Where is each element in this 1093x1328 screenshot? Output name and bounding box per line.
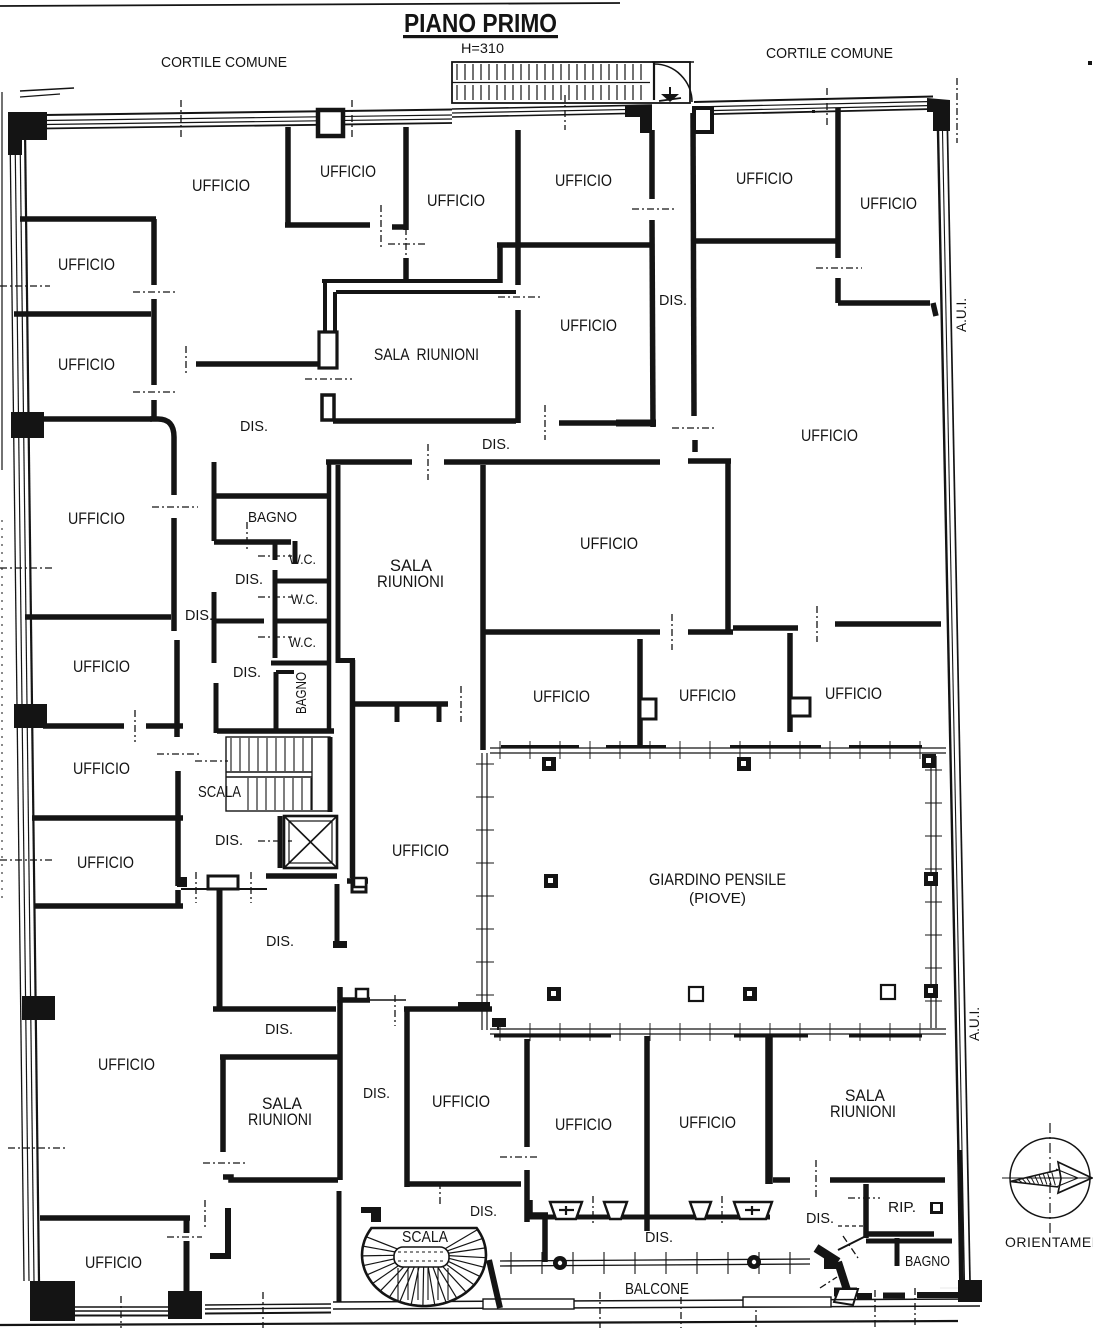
svg-text:DIS.: DIS. xyxy=(806,1210,834,1227)
svg-text:RIUNIONI: RIUNIONI xyxy=(377,573,444,591)
svg-text:UFFICIO: UFFICIO xyxy=(98,1056,155,1074)
svg-text:A.U.I.: A.U.I. xyxy=(966,1007,982,1041)
svg-text:BAGNO: BAGNO xyxy=(294,672,310,714)
svg-text:DIS.: DIS. xyxy=(645,1229,673,1246)
svg-text:UFFICIO: UFFICIO xyxy=(58,256,115,274)
svg-text:W.C.: W.C. xyxy=(291,591,318,607)
svg-text:UFFICIO: UFFICIO xyxy=(825,685,882,703)
svg-text:ORIENTAMENTO: ORIENTAMENTO xyxy=(1005,1234,1093,1250)
svg-text:RIUNIONI: RIUNIONI xyxy=(830,1103,896,1121)
svg-text:A.U.I.: A.U.I. xyxy=(953,298,969,332)
svg-text:H=310: H=310 xyxy=(461,40,504,56)
svg-text:UFFICIO: UFFICIO xyxy=(192,177,250,195)
svg-text:UFFICIO: UFFICIO xyxy=(555,172,612,190)
svg-text:UFFICIO: UFFICIO xyxy=(801,427,858,445)
svg-text:BALCONE: BALCONE xyxy=(625,1281,689,1298)
svg-text:UFFICIO: UFFICIO xyxy=(580,535,638,553)
svg-text:UFFICIO: UFFICIO xyxy=(679,1114,736,1132)
svg-text:BAGNO: BAGNO xyxy=(905,1254,950,1270)
svg-text:UFFICIO: UFFICIO xyxy=(58,356,115,374)
svg-text:UFFICIO: UFFICIO xyxy=(432,1093,490,1111)
svg-text:UFFICIO: UFFICIO xyxy=(679,687,736,705)
svg-text:DIS.: DIS. xyxy=(215,832,243,849)
svg-text:BAGNO: BAGNO xyxy=(248,510,297,526)
svg-text:CORTILE COMUNE: CORTILE COMUNE xyxy=(161,54,287,71)
svg-text:UFFICIO: UFFICIO xyxy=(560,317,617,335)
svg-text:DIS.: DIS. xyxy=(659,292,687,309)
svg-text:DIS.: DIS. xyxy=(235,571,263,588)
svg-text:DIS.: DIS. xyxy=(363,1085,390,1102)
svg-text:UFFICIO: UFFICIO xyxy=(73,760,130,778)
svg-text:(PIOVE): (PIOVE) xyxy=(689,890,746,907)
svg-text:DIS.: DIS. xyxy=(266,933,294,950)
svg-text:UFFICIO: UFFICIO xyxy=(73,658,130,676)
svg-text:UFFICIO: UFFICIO xyxy=(68,510,125,528)
svg-text:UFFICIO: UFFICIO xyxy=(427,192,485,210)
svg-text:W.C.: W.C. xyxy=(289,551,316,567)
svg-text:UFFICIO: UFFICIO xyxy=(533,688,590,706)
svg-text:PIANO PRIMO: PIANO PRIMO xyxy=(404,8,557,38)
svg-text:SCALA: SCALA xyxy=(402,1229,449,1246)
svg-text:UFFICIO: UFFICIO xyxy=(860,195,917,213)
svg-text:SCALA: SCALA xyxy=(198,784,242,801)
svg-text:UFFICIO: UFFICIO xyxy=(320,163,376,181)
svg-text:DIS.: DIS. xyxy=(185,607,213,624)
svg-text:DIS.: DIS. xyxy=(240,418,268,435)
svg-text:W.C.: W.C. xyxy=(289,634,316,650)
svg-text:UFFICIO: UFFICIO xyxy=(555,1116,612,1134)
svg-text:GIARDINO PENSILE: GIARDINO PENSILE xyxy=(649,871,786,889)
svg-text:SALA RIUNIONI: SALA RIUNIONI xyxy=(374,346,479,364)
svg-text:CORTILE COMUNE: CORTILE COMUNE xyxy=(766,45,893,62)
svg-text:UFFICIO: UFFICIO xyxy=(736,170,793,188)
svg-text:RIUNIONI: RIUNIONI xyxy=(248,1111,312,1129)
svg-text:UFFICIO: UFFICIO xyxy=(392,842,449,860)
svg-text:DIS.: DIS. xyxy=(233,664,261,681)
svg-text:DIS.: DIS. xyxy=(470,1203,497,1220)
svg-text:RIP.: RIP. xyxy=(888,1199,916,1216)
svg-text:DIS.: DIS. xyxy=(482,436,510,453)
svg-text:UFFICIO: UFFICIO xyxy=(85,1254,142,1272)
svg-text:UFFICIO: UFFICIO xyxy=(77,854,134,872)
svg-text:DIS.: DIS. xyxy=(265,1021,293,1038)
